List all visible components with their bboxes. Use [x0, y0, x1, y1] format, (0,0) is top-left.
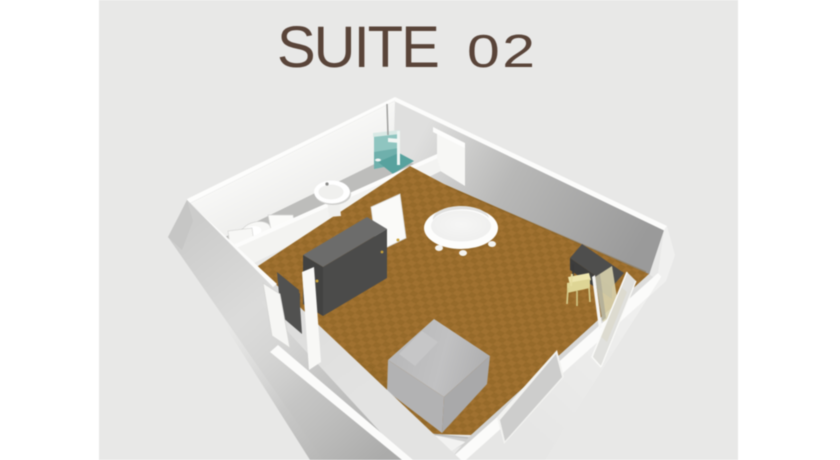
svg-text:SUITE: SUITE	[277, 15, 438, 80]
svg-text:02: 02	[467, 26, 538, 77]
